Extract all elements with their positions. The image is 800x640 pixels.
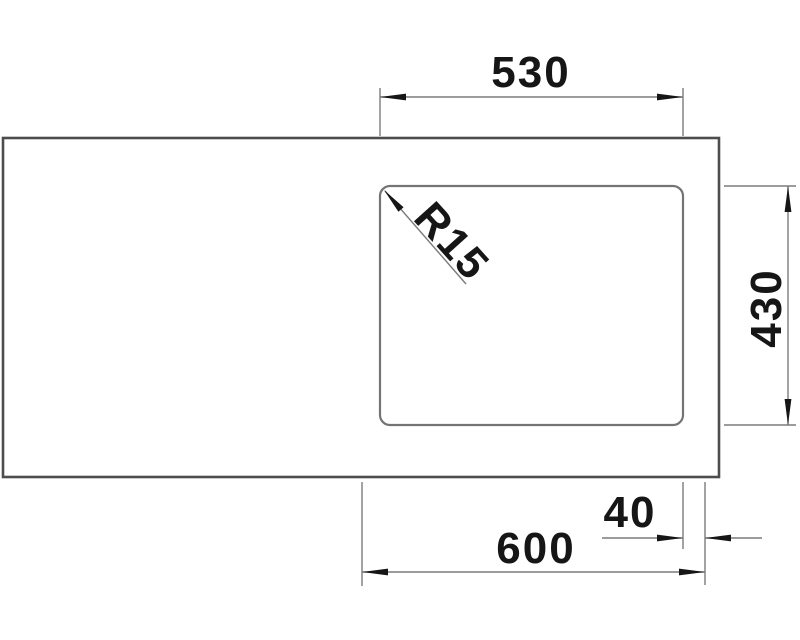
dim-label-bowl-depth: 430 xyxy=(742,268,791,347)
dimension-40: 40 xyxy=(602,482,762,549)
dim-label-right-offset: 40 xyxy=(604,488,657,537)
arrow-up-icon xyxy=(785,186,792,212)
arrow-left-icon xyxy=(705,535,731,542)
sink-dimension-diagram: 530 430 600 40 R15 xyxy=(0,0,800,640)
dim-label-overall-width: 600 xyxy=(496,524,575,573)
dimension-430: 430 xyxy=(724,186,796,425)
dim-label-bowl-width: 530 xyxy=(491,48,570,97)
sink-outer-outline xyxy=(3,138,719,477)
arrow-left-icon xyxy=(362,569,388,576)
dimension-530: 530 xyxy=(380,48,683,136)
arrow-down-icon xyxy=(785,399,792,425)
arrow-right-icon xyxy=(657,94,683,101)
technical-drawing-canvas: 530 430 600 40 R15 xyxy=(0,0,800,640)
arrow-left-icon xyxy=(380,94,406,101)
arrow-right-icon xyxy=(679,569,705,576)
arrow-right-icon xyxy=(657,535,683,542)
